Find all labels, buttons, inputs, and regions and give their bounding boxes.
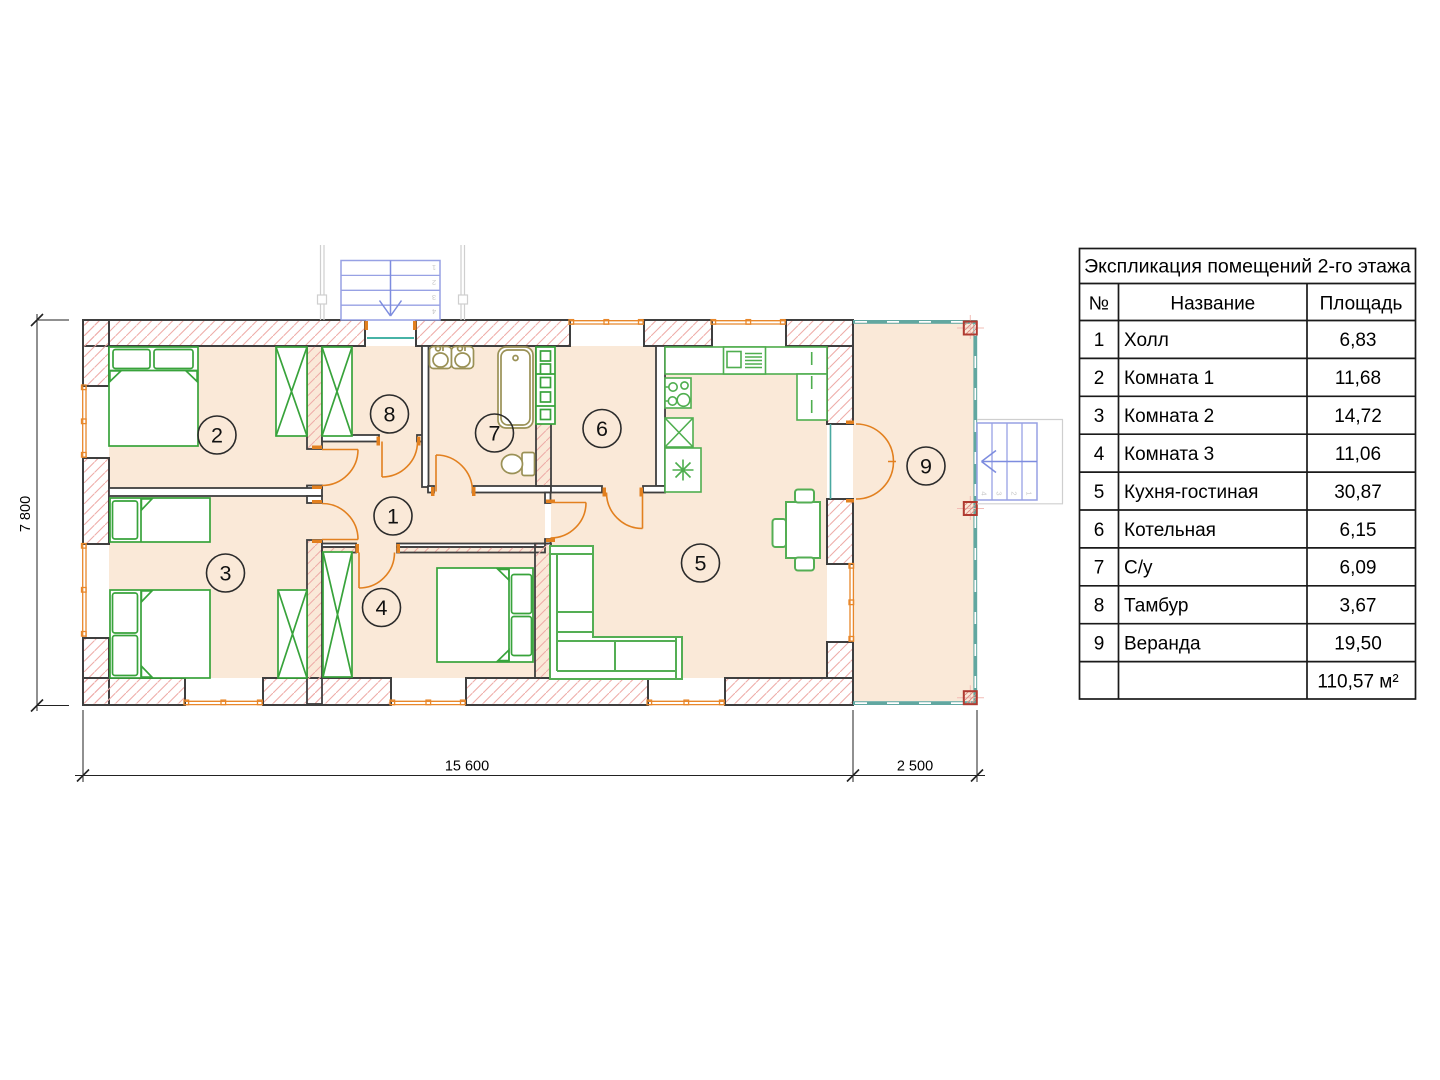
svg-text:7: 7 <box>489 422 501 446</box>
svg-text:8: 8 <box>1094 596 1105 617</box>
svg-text:2 500: 2 500 <box>897 759 933 775</box>
svg-text:30,87: 30,87 <box>1334 482 1382 503</box>
svg-text:6: 6 <box>1094 520 1105 541</box>
svg-text:4: 4 <box>980 491 989 495</box>
svg-text:3,67: 3,67 <box>1340 596 1377 617</box>
svg-text:3: 3 <box>220 562 232 586</box>
svg-text:7 800: 7 800 <box>18 496 34 532</box>
svg-text:2: 2 <box>211 424 223 448</box>
svg-text:1: 1 <box>1094 330 1105 351</box>
svg-text:Площадь: Площадь <box>1320 294 1403 315</box>
svg-text:Кухня-гостиная: Кухня-гостиная <box>1124 482 1258 503</box>
svg-text:2: 2 <box>432 278 436 287</box>
svg-text:11,06: 11,06 <box>1335 444 1381 465</box>
svg-text:6,09: 6,09 <box>1340 558 1377 579</box>
svg-text:14,72: 14,72 <box>1334 406 1382 427</box>
svg-text:4: 4 <box>1094 444 1105 465</box>
svg-text:2: 2 <box>1010 491 1019 495</box>
svg-text:1: 1 <box>1025 491 1034 495</box>
svg-text:1: 1 <box>387 505 399 529</box>
svg-text:6,83: 6,83 <box>1340 330 1377 351</box>
svg-text:6,15: 6,15 <box>1340 520 1377 541</box>
svg-text:Название: Название <box>1170 294 1255 315</box>
svg-text:Веранда: Веранда <box>1124 634 1201 655</box>
svg-text:8: 8 <box>384 403 396 427</box>
svg-text:9: 9 <box>920 455 932 479</box>
svg-text:Экспликация помещений 2-го эта: Экспликация помещений 2-го этажа <box>1084 256 1411 278</box>
svg-text:4: 4 <box>432 307 436 316</box>
svg-text:4: 4 <box>376 596 388 620</box>
svg-text:15 600: 15 600 <box>445 759 489 775</box>
svg-text:С/у: С/у <box>1124 558 1153 579</box>
svg-text:Тамбур: Тамбур <box>1124 596 1189 617</box>
svg-text:1: 1 <box>432 263 436 272</box>
svg-text:3: 3 <box>995 491 1004 495</box>
svg-text:19,50: 19,50 <box>1334 634 1382 655</box>
svg-text:Котельная: Котельная <box>1124 520 1216 541</box>
svg-text:Комната 1: Комната 1 <box>1124 368 1214 389</box>
svg-text:5: 5 <box>1094 482 1105 503</box>
svg-text:7: 7 <box>1094 558 1105 579</box>
svg-text:11,68: 11,68 <box>1335 368 1381 389</box>
svg-text:5: 5 <box>695 552 707 576</box>
svg-text:3: 3 <box>432 293 436 302</box>
svg-text:№: № <box>1089 294 1109 315</box>
svg-text:9: 9 <box>1094 634 1105 655</box>
svg-text:Холл: Холл <box>1124 330 1169 351</box>
svg-text:Комната 2: Комната 2 <box>1124 406 1214 427</box>
svg-text:2: 2 <box>1094 368 1105 389</box>
svg-text:3: 3 <box>1094 406 1105 427</box>
svg-text:Комната 3: Комната 3 <box>1124 444 1214 465</box>
svg-text:110,57 м²: 110,57 м² <box>1317 671 1398 692</box>
svg-text:6: 6 <box>596 417 608 441</box>
